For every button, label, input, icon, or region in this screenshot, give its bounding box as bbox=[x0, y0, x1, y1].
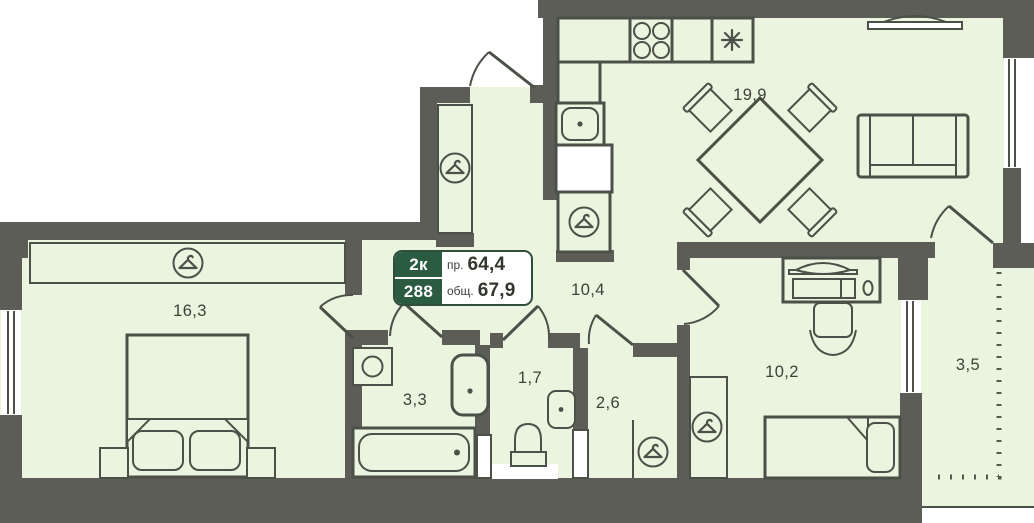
balcony-window bbox=[901, 300, 921, 393]
total-area-label: общ. bbox=[447, 284, 474, 298]
entry-door bbox=[470, 52, 535, 88]
wc-duct bbox=[573, 430, 588, 478]
entry-closet bbox=[438, 105, 472, 233]
area-label-bathroom: 3,3 bbox=[403, 391, 427, 409]
pillow bbox=[133, 431, 183, 470]
hall-wardrobe bbox=[558, 192, 610, 252]
extractor-asterisk-icon bbox=[722, 30, 742, 50]
kitchen-shaft bbox=[556, 145, 612, 192]
desk bbox=[783, 258, 880, 302]
area-label-hallway: 10,4 bbox=[571, 281, 605, 299]
apartment-id-column: 2к 288 bbox=[395, 252, 442, 304]
apartment-info-card: 2к 288 пр. 64,4 общ. 67,9 bbox=[393, 250, 533, 306]
area-label-bedroom2: 10,2 bbox=[765, 363, 799, 381]
apartment-areas-column: пр. 64,4 общ. 67,9 bbox=[442, 252, 531, 304]
pillow bbox=[867, 423, 894, 472]
washing-machine bbox=[353, 348, 392, 385]
bathroom-sink bbox=[452, 355, 488, 415]
double-bed bbox=[127, 335, 248, 477]
living-area-value: 64,4 bbox=[468, 254, 506, 276]
sofa bbox=[858, 115, 968, 177]
bedroom-window bbox=[1, 310, 21, 415]
nightstand bbox=[100, 448, 128, 478]
bath-duct bbox=[477, 435, 491, 478]
area-label-kitchen: 19,9 bbox=[733, 86, 767, 104]
apartment-type-badge: 2к bbox=[395, 252, 442, 279]
apartment-number-badge: 288 bbox=[395, 279, 442, 304]
living-area-row: пр. 64,4 bbox=[442, 252, 531, 278]
bathtub bbox=[353, 428, 475, 477]
nightstand bbox=[247, 448, 275, 478]
balcony-floor bbox=[922, 243, 1034, 507]
area-label-storage: 2,6 bbox=[596, 394, 620, 412]
wc-sink bbox=[548, 391, 575, 428]
floorplan: 19,9 16,3 10,4 3,3 1,7 2,6 10,2 3,5 2к 2… bbox=[0, 0, 1034, 523]
kitchen-window bbox=[1004, 58, 1021, 168]
dining-set bbox=[683, 83, 837, 237]
pillow bbox=[190, 431, 240, 470]
living-area-label: пр. bbox=[447, 258, 464, 272]
total-area-row: общ. 67,9 bbox=[442, 278, 531, 304]
area-label-bedroom: 16,3 bbox=[173, 302, 207, 320]
kitchen-sink bbox=[556, 103, 604, 145]
total-area-value: 67,9 bbox=[478, 280, 516, 302]
area-label-wc: 1,7 bbox=[518, 369, 542, 387]
area-label-balcony: 3,5 bbox=[956, 356, 980, 374]
single-bed bbox=[765, 417, 900, 478]
